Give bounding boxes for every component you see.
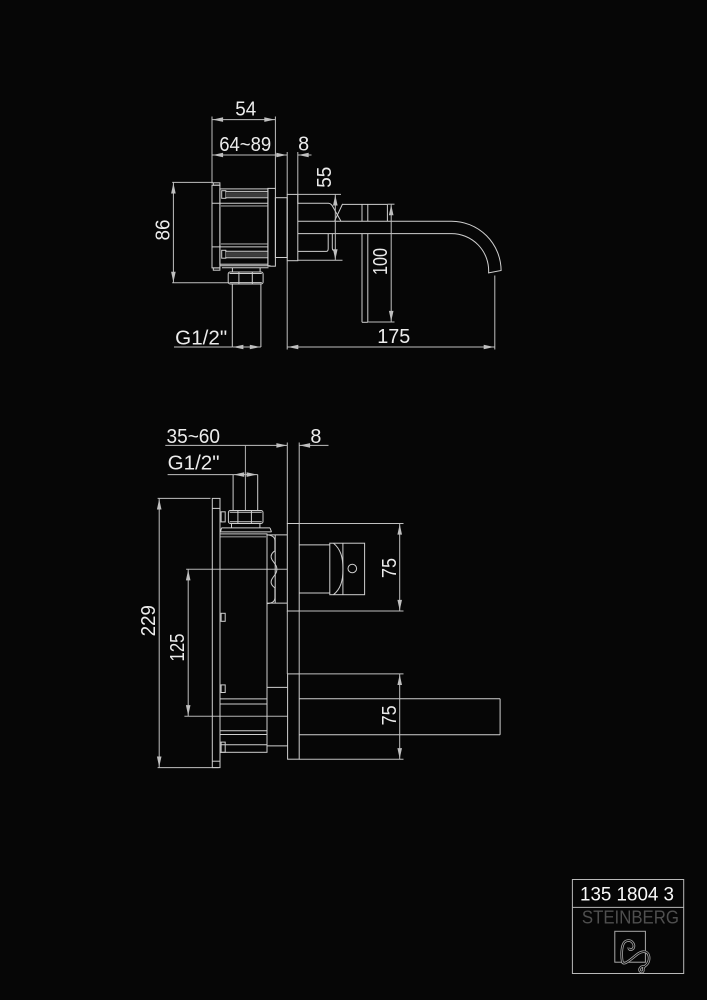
svg-text:55: 55 xyxy=(314,167,336,188)
svg-text:75: 75 xyxy=(379,558,401,578)
svg-text:229: 229 xyxy=(138,605,160,636)
svg-text:64~89: 64~89 xyxy=(219,134,271,156)
svg-text:35~60: 35~60 xyxy=(167,426,221,448)
svg-text:G1/2": G1/2" xyxy=(175,328,227,350)
svg-text:STEINBERG: STEINBERG xyxy=(582,906,679,927)
svg-text:135 1804 3: 135 1804 3 xyxy=(580,884,674,905)
svg-text:100: 100 xyxy=(370,248,392,275)
svg-text:125: 125 xyxy=(167,634,189,662)
svg-text:75: 75 xyxy=(379,705,401,725)
svg-text:8: 8 xyxy=(310,426,321,448)
svg-text:175: 175 xyxy=(377,326,410,348)
svg-text:G1/2": G1/2" xyxy=(168,453,220,475)
svg-text:54: 54 xyxy=(235,99,256,121)
svg-text:86: 86 xyxy=(152,220,174,241)
svg-text:8: 8 xyxy=(298,133,309,155)
